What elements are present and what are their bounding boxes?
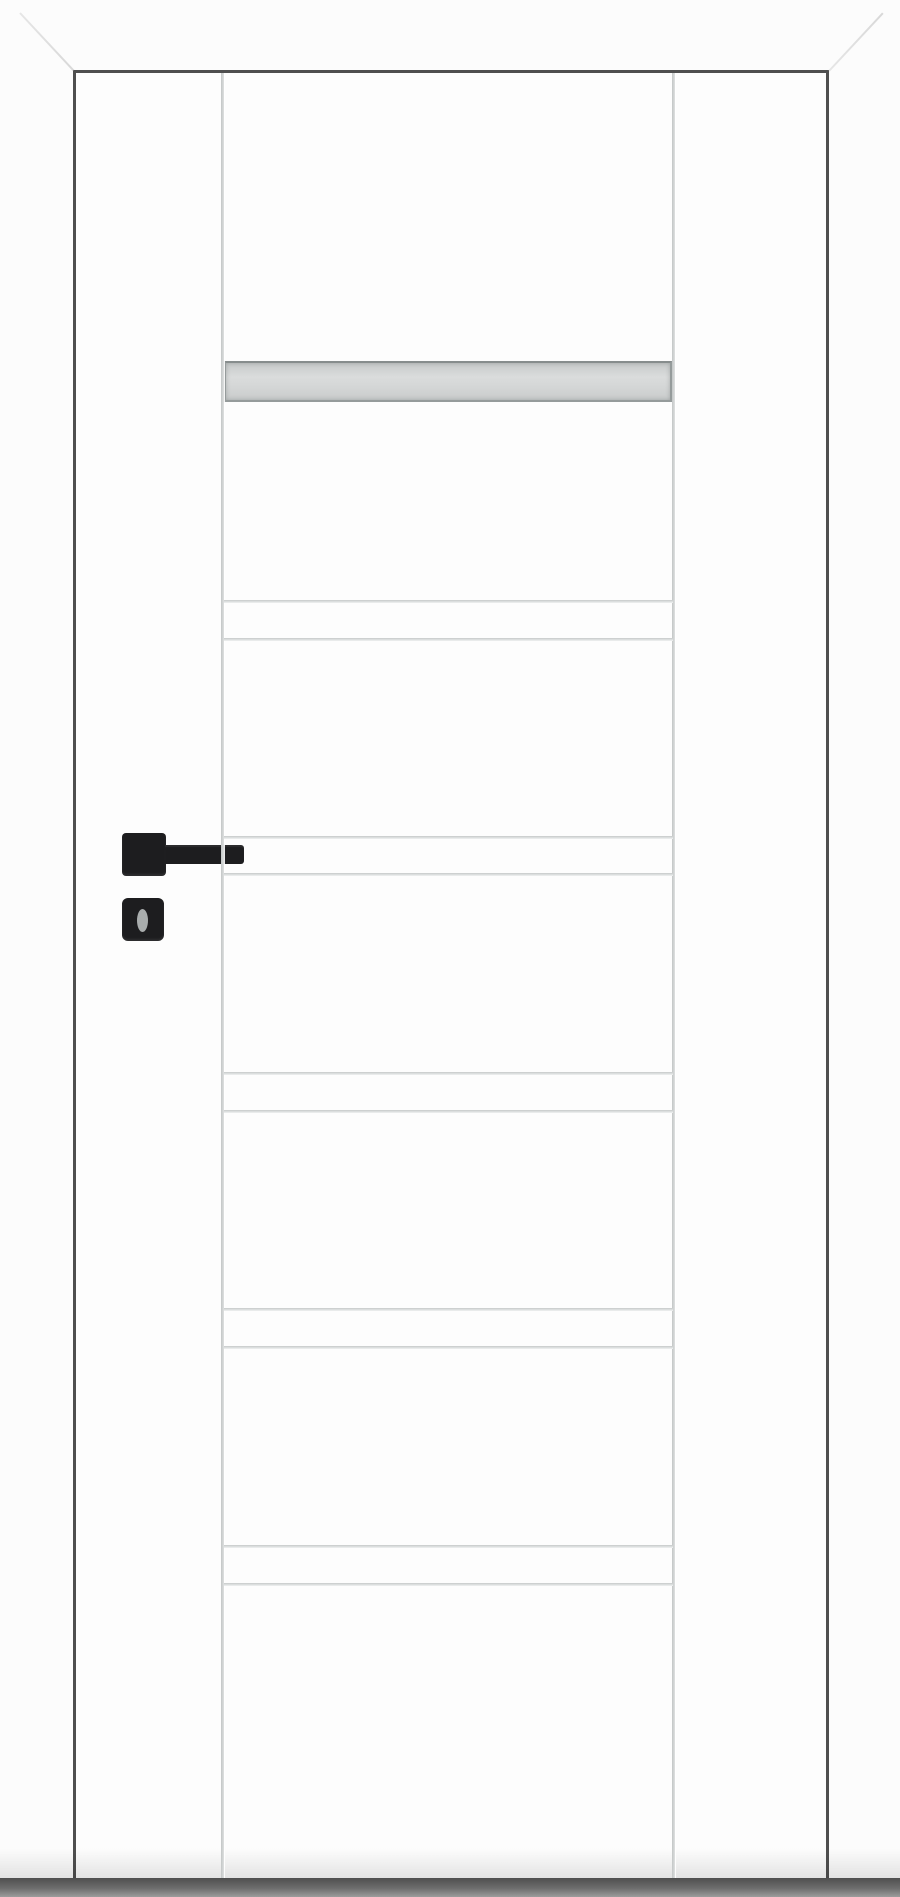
glazing-strip xyxy=(224,361,672,402)
frame-gap-right xyxy=(826,70,829,1883)
door-vertical-groove xyxy=(672,73,675,1878)
frame-gap-top xyxy=(74,70,829,73)
door-vertical-groove xyxy=(221,73,224,1878)
panel-groove-line xyxy=(224,638,673,641)
soft-floor-shadow xyxy=(0,1848,900,1878)
panel-groove-line xyxy=(224,1072,673,1075)
keyhole xyxy=(137,909,148,932)
frame-miter-top-right xyxy=(828,12,883,71)
panel-groove-line xyxy=(224,1346,673,1349)
panel-groove-line xyxy=(224,836,673,839)
door-scene xyxy=(0,0,900,1897)
handle-lever xyxy=(165,845,244,864)
frame-miter-top-left xyxy=(19,12,74,71)
floor-shadow xyxy=(0,1878,900,1897)
frame-gap-left xyxy=(73,70,76,1883)
door-leaf xyxy=(76,73,826,1879)
panel-groove-line xyxy=(224,1308,673,1311)
panel-groove-line xyxy=(224,1110,673,1113)
handle-rose-plate xyxy=(122,833,166,876)
panel-groove-line xyxy=(224,1583,673,1586)
panel-groove-line xyxy=(224,873,673,876)
panel-groove-line xyxy=(224,600,673,603)
panel-groove-line xyxy=(224,1545,673,1548)
